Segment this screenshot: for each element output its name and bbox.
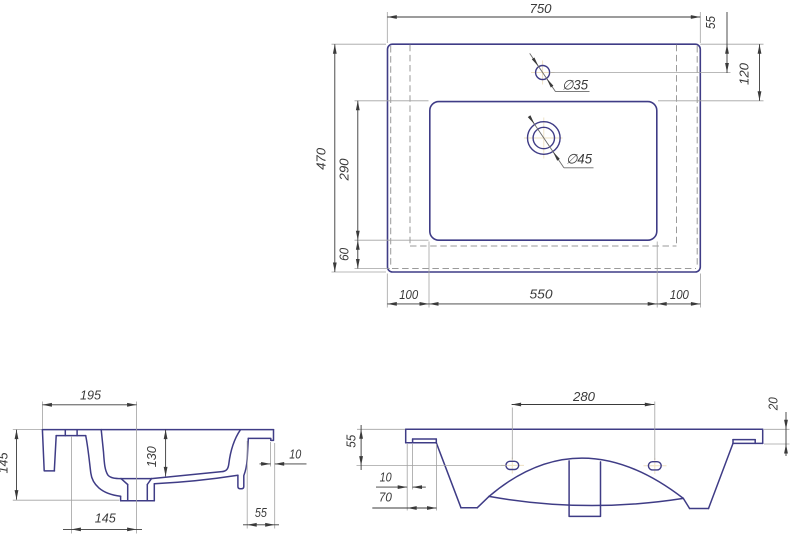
svg-text:55: 55 [703, 15, 718, 29]
svg-text:∅35: ∅35 [562, 78, 588, 93]
svg-text:55: 55 [343, 434, 358, 448]
svg-text:10: 10 [289, 446, 302, 461]
svg-text:470: 470 [314, 147, 329, 170]
svg-text:20: 20 [765, 397, 780, 411]
svg-text:100: 100 [399, 287, 419, 302]
svg-text:100: 100 [670, 287, 690, 302]
svg-text:145: 145 [0, 452, 10, 474]
svg-text:290: 290 [337, 158, 352, 182]
svg-text:130: 130 [144, 446, 159, 468]
svg-text:60: 60 [337, 247, 352, 261]
svg-text:750: 750 [530, 1, 553, 16]
svg-text:195: 195 [80, 387, 102, 402]
svg-text:55: 55 [255, 505, 268, 520]
svg-text:550: 550 [530, 287, 554, 302]
svg-text:145: 145 [95, 511, 117, 526]
svg-text:120: 120 [737, 62, 752, 85]
svg-text:10: 10 [380, 469, 393, 484]
svg-text:∅45: ∅45 [566, 152, 592, 167]
svg-text:280: 280 [572, 389, 596, 404]
svg-text:70: 70 [379, 490, 393, 505]
